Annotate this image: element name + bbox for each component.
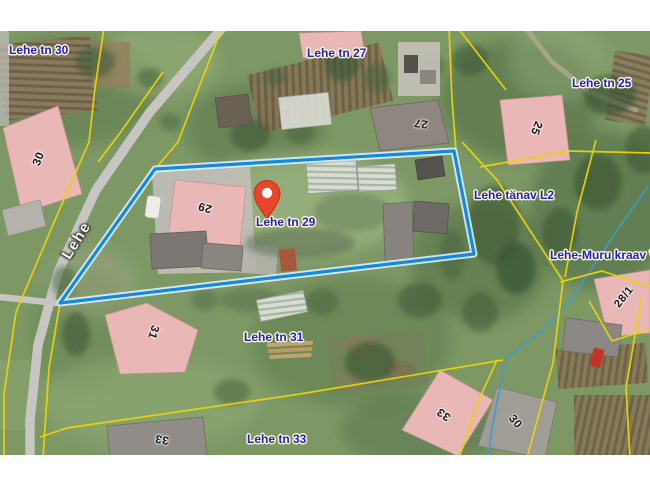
house-number-33-sw: 33 [154,432,170,446]
house-number-27: 27 [413,116,428,130]
address-label-lehe-tn-31: Lehe tn 31 [244,330,303,344]
address-label-lehe-tn-30: Lehe tn 30 [9,43,68,57]
address-label-lehe-tn-25: Lehe tn 25 [572,76,631,90]
address-label-lehe-muru-kraav-v2: Lehe-Muru kraav V2 [550,248,650,262]
address-label-lehe-tn-33: Lehe tn 33 [247,432,306,446]
address-label-lehe-tanav-l2: Lehe tänav L2 [474,188,554,202]
aerial-map-viewport[interactable] [0,31,650,455]
address-label-lehe-tn-29: Lehe tn 29 [256,215,315,229]
screenshot-frame: Lehe tn 30 Lehe tn 27 Lehe tn 25 Lehe tä… [0,0,650,487]
aerial-imagery [0,31,650,455]
address-label-lehe-tn-27: Lehe tn 27 [307,46,366,60]
